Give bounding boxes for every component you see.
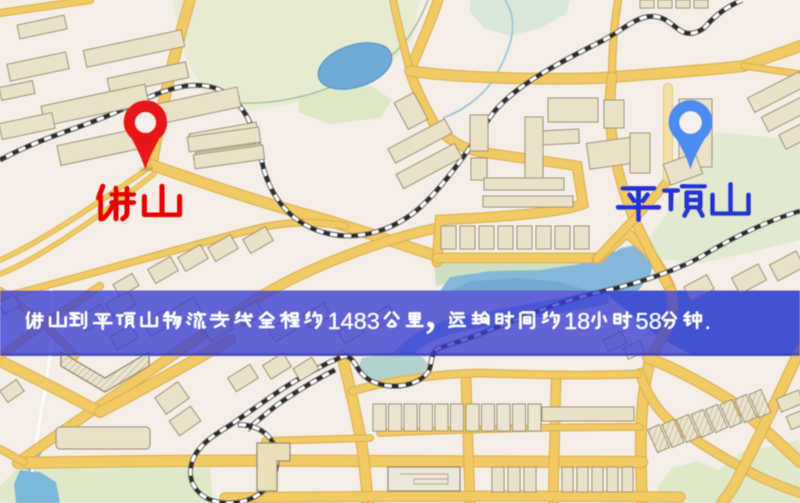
svg-text:18: 18	[564, 308, 590, 334]
svg-text:1483: 1483	[328, 308, 380, 334]
svg-text:.: .	[705, 308, 712, 334]
svg-text:58: 58	[636, 308, 662, 334]
